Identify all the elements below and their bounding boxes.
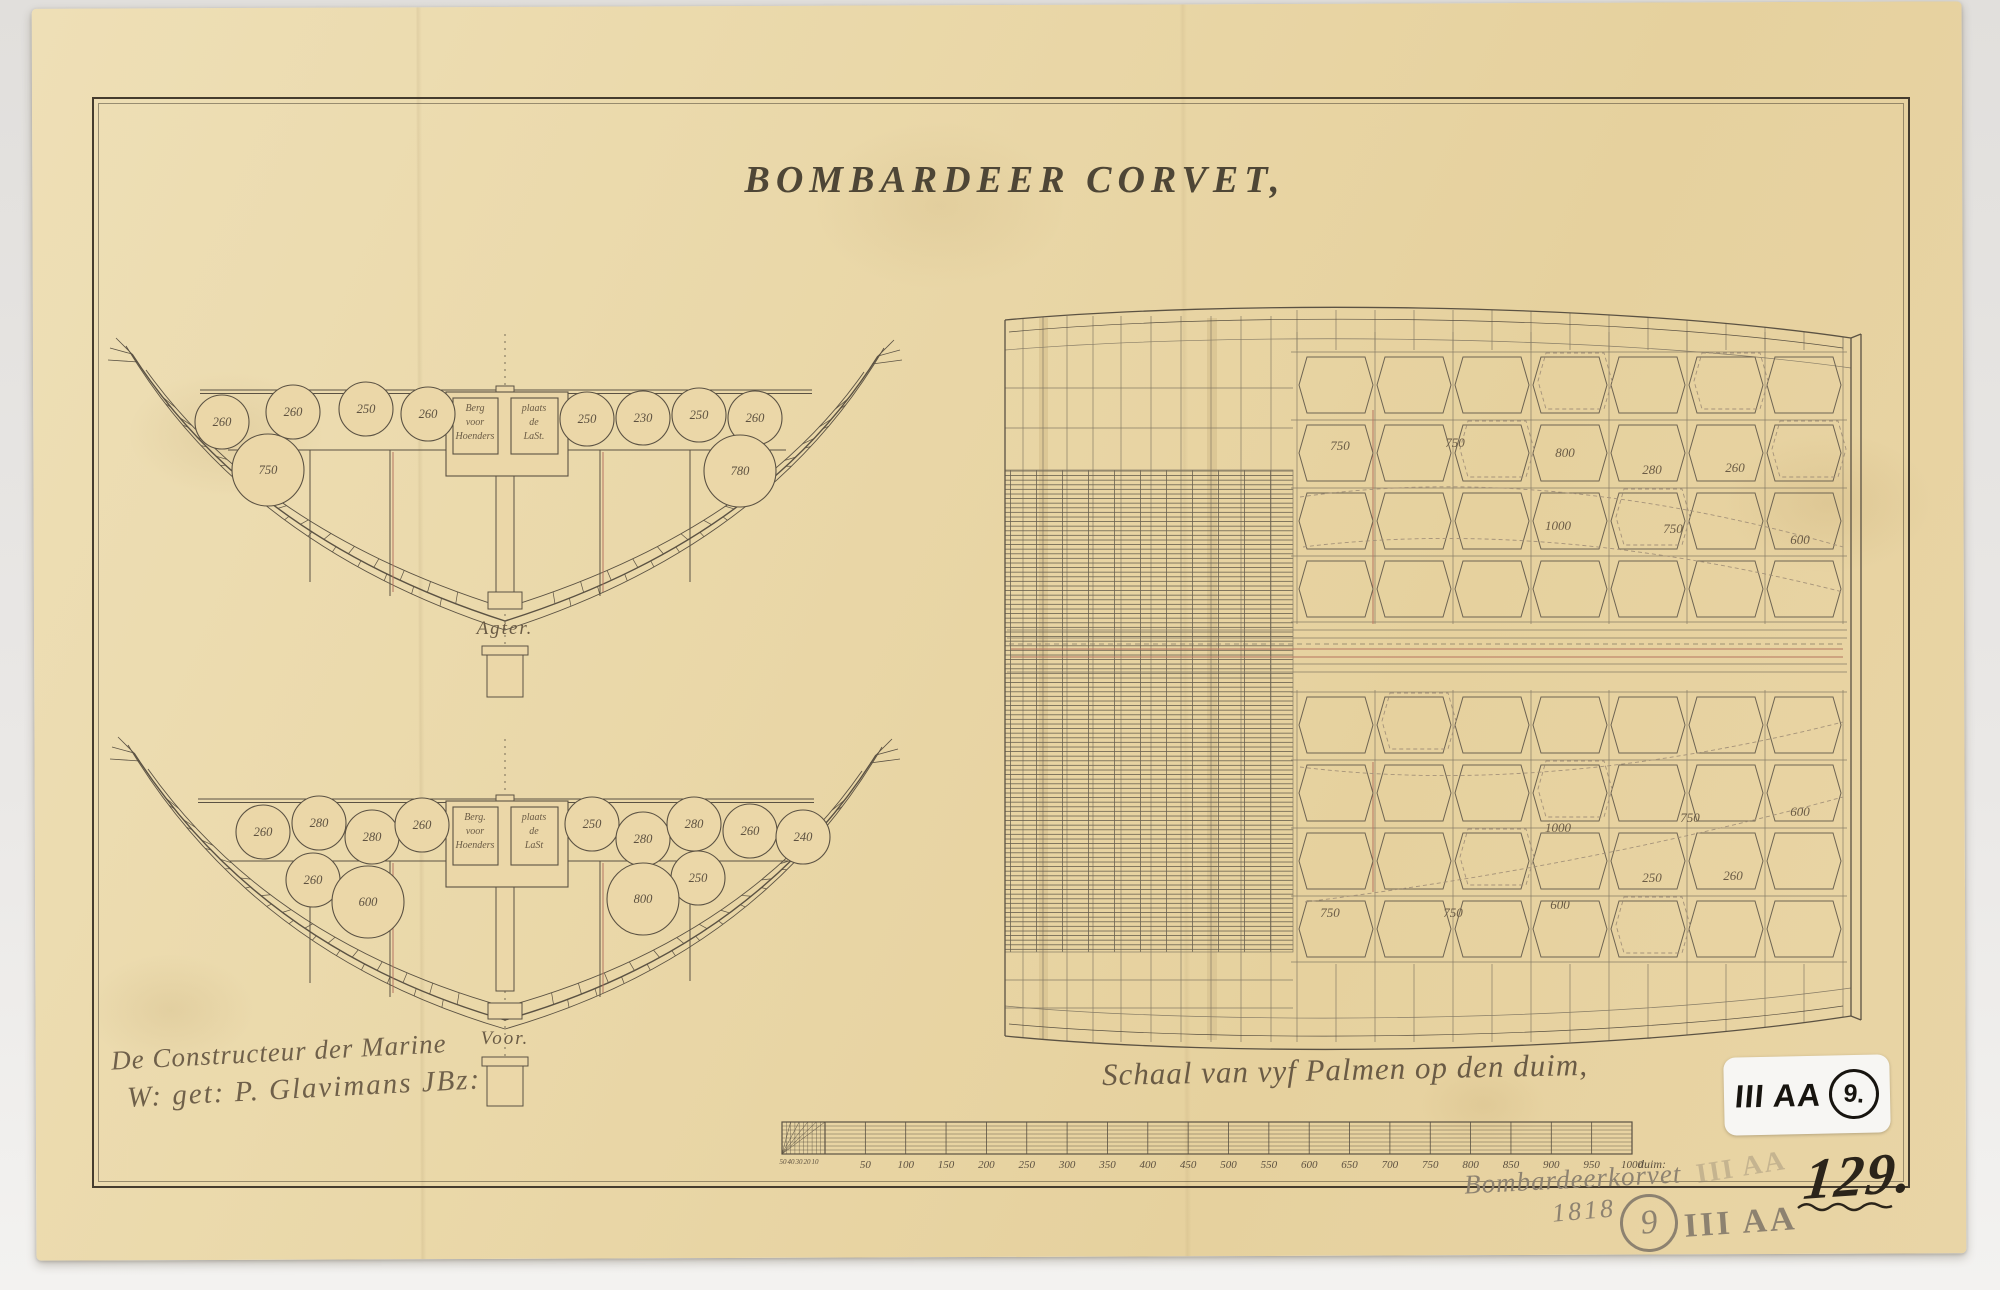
- scale-tick-label: 150: [938, 1159, 955, 1171]
- scale-tick-label: 250: [1019, 1159, 1036, 1171]
- drawing-text: 600: [359, 895, 379, 909]
- scale-tick-label: 300: [1058, 1159, 1076, 1171]
- drawing-text: de: [529, 417, 539, 428]
- stowage-value: 750: [1320, 905, 1340, 920]
- drawing-text: 260: [741, 824, 761, 838]
- stowage-value: 260: [1723, 868, 1743, 883]
- section-label: Voor.: [481, 1028, 530, 1049]
- scale-tick-label: 750: [1422, 1159, 1439, 1171]
- scale-tick-label: 650: [1341, 1159, 1358, 1171]
- deck-plan-drawing: 7507508002802601000750600100075060025026…: [985, 292, 1870, 1072]
- stowage-value: 250: [1642, 870, 1662, 885]
- drawing-text: 250: [578, 412, 598, 426]
- scale-tick-label: 700: [1382, 1159, 1399, 1171]
- stowage-value: 600: [1550, 897, 1570, 912]
- scale-tick-label: 450: [1180, 1159, 1197, 1171]
- drawing-text: plaats: [521, 403, 547, 414]
- pencil-class: III AA: [1683, 1200, 1799, 1246]
- scale-tick-label: 600: [1301, 1159, 1318, 1171]
- drawing-text: 800: [634, 892, 654, 906]
- drawing-text: 260: [284, 405, 304, 419]
- scale-minor-label: 40: [788, 1158, 796, 1166]
- drawing-text: voor: [466, 417, 484, 428]
- scale-minor-label: 50: [780, 1158, 788, 1166]
- archive-sticker: III AA 9.: [1723, 1054, 1891, 1135]
- pencil-year: 1818: [1551, 1193, 1617, 1228]
- scanned-drawing-sheet: BOMBARDEER CORVET, BergvoorHoendersplaat…: [0, 0, 2000, 1290]
- stowage-value: 750: [1443, 905, 1463, 920]
- scale-bar-lines: [782, 1122, 1632, 1154]
- stowage-value: 260: [1725, 460, 1745, 475]
- stowage-value: 280: [1642, 462, 1662, 477]
- scale-tick-label: 400: [1140, 1159, 1157, 1171]
- scale-tick-label: 100: [897, 1159, 914, 1171]
- scale-tick-label: 50: [860, 1159, 872, 1171]
- drawing-text: Hoenders: [455, 431, 495, 442]
- drawing-text: 250: [583, 817, 603, 831]
- stowage-value: 600: [1790, 804, 1810, 819]
- stowage-value: 600: [1790, 532, 1810, 547]
- drawing-title: BOMBARDEER CORVET,: [735, 158, 1295, 202]
- drawing-text: 260: [304, 873, 324, 887]
- drawing-text: 260: [413, 818, 433, 832]
- stowage-value: 750: [1330, 438, 1350, 453]
- aft-cross-section-drawing: BergvoorHoendersplaatsdeLaSt.26026025026…: [100, 330, 910, 715]
- drawing-text: Hoenders: [455, 840, 495, 851]
- inventory-underline: [1796, 1198, 1896, 1214]
- drawing-text: 780: [731, 464, 751, 478]
- drawing-text: 260: [254, 825, 274, 839]
- scale-tick-label: 350: [1098, 1159, 1116, 1171]
- drawing-text: 260: [746, 411, 766, 425]
- drawing-text: 280: [363, 830, 383, 844]
- scale-tick-label: 500: [1220, 1159, 1237, 1171]
- drawing-text: 280: [634, 832, 654, 846]
- drawing-text: 280: [310, 816, 330, 830]
- drawing-text: Berg.: [464, 812, 486, 823]
- stowage-value: 1000: [1545, 820, 1572, 835]
- scale-tick-label: 200: [978, 1159, 995, 1171]
- stowage-value: 750: [1445, 435, 1465, 450]
- scale-minor-label: 20: [804, 1158, 812, 1166]
- drawing-text: LaSt: [524, 840, 544, 851]
- scale-minor-label: 30: [795, 1158, 804, 1166]
- stowage-value: 800: [1555, 445, 1575, 460]
- scale-minor-label: 10: [812, 1158, 820, 1166]
- drawing-text: 230: [634, 411, 654, 425]
- stowage-value: 1000: [1545, 518, 1572, 533]
- plan-interior: [1001, 310, 1851, 1042]
- sticker-circled-number: 9.: [1827, 1067, 1881, 1121]
- drawing-text: plaats: [521, 812, 547, 823]
- drawing-text: 250: [690, 408, 710, 422]
- drawing-text: 750: [259, 463, 279, 477]
- drawing-text: 260: [213, 415, 233, 429]
- drawing-text: 260: [419, 407, 439, 421]
- sticker-class-label: III AA: [1734, 1076, 1824, 1115]
- drawing-text: Berg: [465, 403, 484, 414]
- drawing-text: voor: [466, 826, 484, 837]
- drawing-text: LaSt.: [523, 431, 545, 442]
- section-label: Agter.: [475, 618, 534, 639]
- drawing-text: 250: [689, 871, 709, 885]
- stowage-value: 750: [1680, 810, 1700, 825]
- drawing-text: de: [529, 826, 539, 837]
- drawing-text: 280: [685, 817, 705, 831]
- drawing-text: 250: [357, 402, 377, 416]
- drawing-text: 240: [794, 830, 814, 844]
- stowage-value: 750: [1663, 521, 1683, 536]
- scale-tick-label: 550: [1261, 1159, 1278, 1171]
